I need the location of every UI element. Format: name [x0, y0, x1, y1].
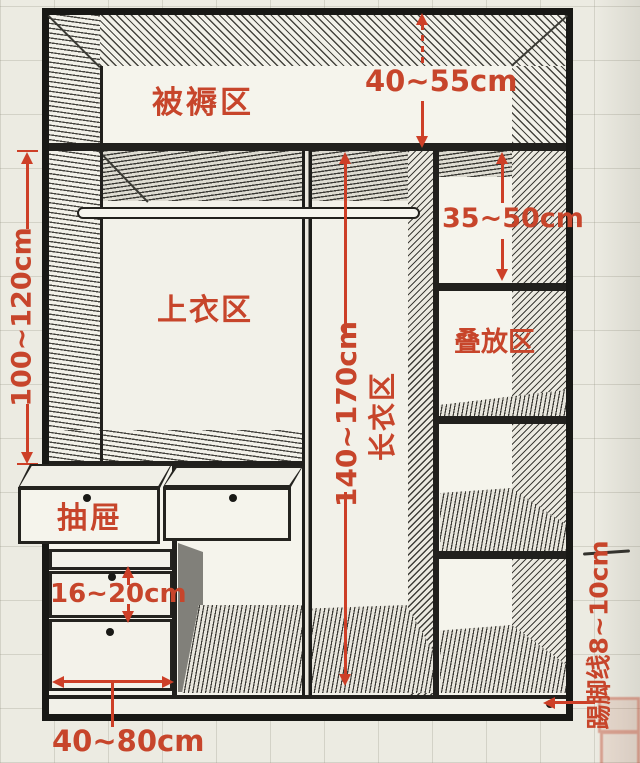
- right-shelf-1: [437, 283, 566, 291]
- dim-shelf-line-bottom: [501, 239, 504, 271]
- dim-long-line-bottom: [344, 492, 347, 676]
- dim-kickline: 踢脚线8~10cm: [587, 540, 612, 729]
- drawer-label: 抽屉: [57, 504, 123, 534]
- tops-zone-floor: [49, 430, 303, 462]
- tops-zone-label: 上衣区: [157, 296, 253, 326]
- dim-bedding-arrow-down: [416, 136, 428, 148]
- dim-drawer-height: 16~20cm: [50, 581, 187, 607]
- dim-long-height: 140~170cm: [333, 321, 361, 507]
- dim-bedding-height: 40~55cm: [365, 67, 517, 96]
- pulled-drawer-a-top: [18, 464, 172, 488]
- pulled-drawer-b-top: [163, 466, 303, 487]
- hanging-rod: [77, 207, 420, 219]
- drawer-knob: [106, 628, 114, 636]
- drawer-knob: [229, 494, 237, 502]
- dim-long-arrow-down: [339, 674, 351, 686]
- divider-left-center: [302, 151, 312, 695]
- dim-width-leader: [111, 683, 114, 727]
- bay-floor: [182, 605, 302, 693]
- stacking-zone-label: 叠放区: [454, 329, 535, 356]
- dim-drawer-width: 40~80cm: [52, 727, 204, 756]
- wardrobe-dimension-diagram: 被褥区 40~55cm 100~120cm 上衣区 35~50cm 叠放区 14…: [0, 0, 640, 763]
- tops-left-edge: [100, 151, 103, 462]
- dim-shelf-line-top: [501, 163, 504, 203]
- dim-drawer-arrow-down: [122, 611, 134, 623]
- bedding-shelf: [49, 143, 566, 151]
- tops-zone-ceiling: [100, 151, 418, 201]
- dim-hanging-arrow-up: [21, 152, 33, 164]
- dim-bedding-line-bottom: [421, 101, 424, 138]
- dim-shelf-arrow-down: [496, 269, 508, 281]
- dim-hanging-height: 100~120cm: [9, 227, 36, 406]
- dim-bedding-line-top: [421, 24, 424, 64]
- plinth: [49, 695, 566, 714]
- bedding-zone-label: 被褥区: [152, 88, 254, 119]
- dim-hanging-line-top: [26, 163, 29, 229]
- dim-hanging-arrow-down: [21, 452, 33, 464]
- right-shelf-3: [437, 551, 566, 559]
- bedding-zone-right-wall: [512, 66, 566, 143]
- dim-long-line-top: [344, 163, 347, 336]
- dim-width-arrow-right: [162, 676, 174, 688]
- dim-hanging-line-bottom: [26, 404, 29, 454]
- dim-shelf-height: 35~50cm: [442, 205, 584, 232]
- bedding-left-edge: [100, 66, 103, 143]
- cabinet-left-panel: [49, 15, 100, 465]
- cabinet-top-panel: [49, 15, 566, 66]
- stack-drawer-thin: [49, 549, 173, 570]
- pulled-drawer-b-front: [163, 487, 291, 541]
- right-shelf-2: [437, 416, 566, 424]
- long-clothes-zone-label: 长衣区: [369, 371, 397, 461]
- right-column-wall-edge: [433, 151, 439, 695]
